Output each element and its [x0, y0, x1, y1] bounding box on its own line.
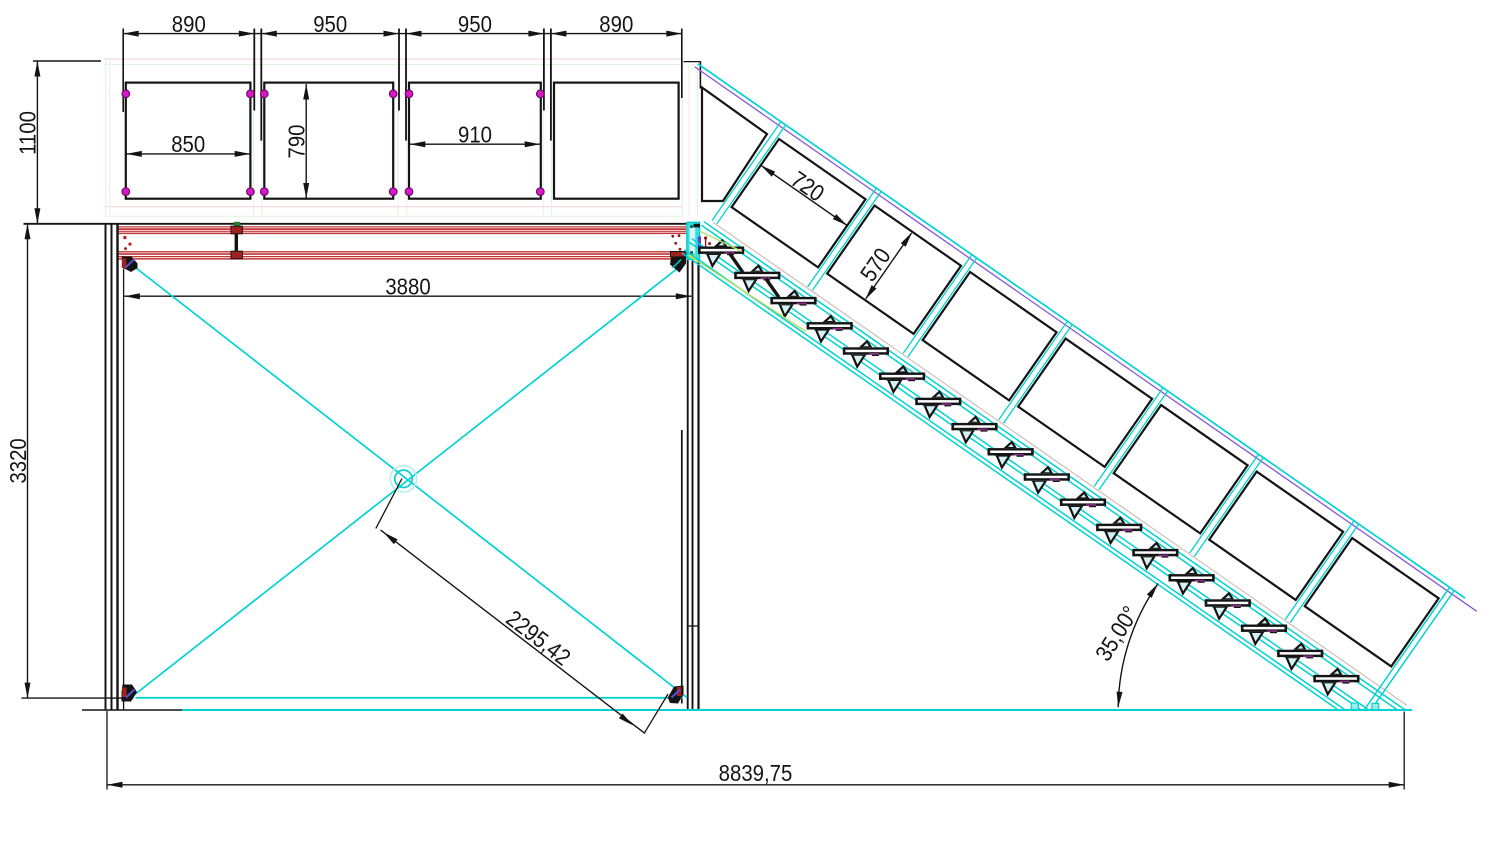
svg-text:910: 910 — [458, 121, 492, 148]
svg-text:890: 890 — [172, 11, 206, 38]
svg-text:3880: 3880 — [385, 273, 430, 300]
svg-text:950: 950 — [313, 11, 347, 38]
svg-text:790: 790 — [283, 125, 310, 159]
svg-text:950: 950 — [458, 11, 492, 38]
svg-text:3320: 3320 — [5, 438, 32, 483]
svg-text:1100: 1100 — [14, 111, 41, 155]
svg-text:890: 890 — [599, 11, 633, 38]
svg-text:8839,75: 8839,75 — [719, 760, 793, 787]
svg-text:850: 850 — [171, 131, 205, 158]
